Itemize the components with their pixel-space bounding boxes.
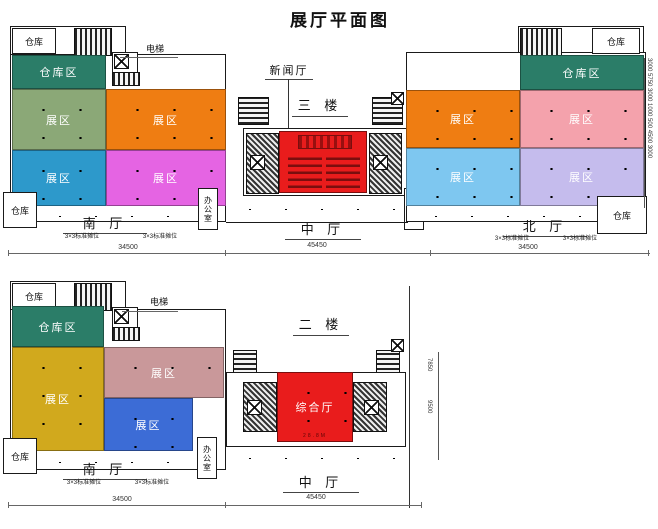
f2-multi-hall-dim: 28.8M xyxy=(278,433,352,439)
f3-warehouse-top-left: 仓库 xyxy=(12,28,56,54)
f2-zone-storage: 仓库区 xyxy=(12,306,104,347)
f3-news-hall-room xyxy=(279,131,367,193)
page-title: 展厅平面图 xyxy=(235,6,445,31)
zone-label: 展区 xyxy=(153,112,179,128)
f3-elevator-label: 电梯 xyxy=(146,42,164,55)
zone-label: 展区 xyxy=(151,365,177,381)
zone-label: 展区 xyxy=(569,111,595,127)
f3-dim-line xyxy=(8,253,650,254)
dim-tick xyxy=(430,250,431,256)
zone-label: 展区 xyxy=(136,417,162,433)
f3-dim-right-chain: 3000 5750 3000 1000 500 4500 3000 xyxy=(644,58,652,208)
f3-stair-tower-left-icon xyxy=(238,97,269,125)
f2-warehouse-bottom-left: 仓库 xyxy=(3,438,37,474)
dim-tick xyxy=(648,250,649,256)
f2-elevator-leader-line xyxy=(122,311,178,312)
zone-label: 综合厅 xyxy=(296,399,335,415)
f2-dim-central: 45450 xyxy=(296,494,336,501)
f2-floor-label: 二 楼 xyxy=(293,314,349,336)
f2-right-boundary-line xyxy=(409,286,410,508)
f3-booth-note-2: 3×3标准摊位 xyxy=(124,231,196,240)
office-label: 办公室 xyxy=(203,196,214,223)
f2-zone-dusty-pink: 展区 xyxy=(104,347,224,398)
warehouse-label: 仓库 xyxy=(613,209,631,222)
f3-dim-central: 45450 xyxy=(297,242,337,249)
zone-label: 展区 xyxy=(46,170,72,186)
zone-label: 展区 xyxy=(153,170,179,186)
f2-multi-hall-room: 综合厅 28.8M xyxy=(277,372,353,442)
dim-tick xyxy=(225,502,226,508)
f2-dim-south: 34500 xyxy=(102,496,142,503)
f3-zone-orange-left: 展区 xyxy=(106,89,226,150)
f3-stair-core-top-left-icon xyxy=(74,28,112,56)
zone-label: 仓库区 xyxy=(39,319,78,335)
f2-central-corridor-columns xyxy=(226,450,406,470)
f2-dim-right-upper: 7850 xyxy=(426,358,432,394)
dim-tick xyxy=(8,250,9,256)
f3-warehouse-bottom-right: 仓库 xyxy=(597,196,647,234)
f2-elevator-core-hatch-icon xyxy=(112,327,140,341)
dim-tick xyxy=(225,250,226,256)
warehouse-label: 仓库 xyxy=(11,450,29,463)
f2-elevator-label: 电梯 xyxy=(150,295,168,308)
zone-label: 展区 xyxy=(45,391,71,407)
f3-floor-label: 三 楼 xyxy=(292,95,348,117)
f3-stair-core-top-right-icon xyxy=(520,28,562,56)
f3-dim-south: 34500 xyxy=(108,244,148,251)
f3-warehouse-bottom-left: 仓库 xyxy=(3,192,37,228)
f3-core-right-x-icon xyxy=(373,155,388,170)
f3-zone-storage-right: 仓库区 xyxy=(520,55,644,90)
f3-booth-note-3: 3×3标准摊位 xyxy=(476,233,548,242)
f2-core-right-x-icon xyxy=(364,400,379,415)
f3-stage-icon xyxy=(298,135,352,149)
f3-warehouse-top-right: 仓库 xyxy=(592,28,640,54)
f3-zone-salmon-pink: 展区 xyxy=(520,90,644,148)
zone-label: 仓库区 xyxy=(563,65,602,81)
warehouse-label: 仓库 xyxy=(25,35,43,48)
zone-label: 展区 xyxy=(450,111,476,127)
f3-news-hall-leader-line xyxy=(288,79,289,128)
f3-zone-sage-green: 展区 xyxy=(12,89,106,150)
floor-plan-sheet: 展厅平面图 仓库 电梯 仓库区 展区 展区 展区 展区 仓库 南 厅 3×3标准… xyxy=(0,0,658,529)
f2-booth-note-2: 3×3标准摊位 xyxy=(116,477,188,486)
f3-seat-rows-left-icon xyxy=(288,154,322,188)
f2-booth-note-1: 3×3标准摊位 xyxy=(48,477,120,486)
dim-tick xyxy=(421,502,422,508)
dim-tick xyxy=(8,502,9,508)
f3-elevator-leader-line xyxy=(120,57,178,58)
f2-dim-right-lower: 9500 xyxy=(426,400,432,436)
zone-label: 展区 xyxy=(450,169,476,185)
f3-zone-storage-left: 仓库区 xyxy=(12,55,106,89)
f2-zone-gold: 展区 xyxy=(12,347,104,451)
office-label: 办公室 xyxy=(202,445,213,472)
f2-central-hall-label: 中 厅 xyxy=(283,472,359,493)
f2-office: 办公室 xyxy=(197,437,217,479)
warehouse-label: 仓库 xyxy=(11,204,29,217)
f2-core-left-x-icon xyxy=(247,400,262,415)
zone-label: 仓库区 xyxy=(40,64,79,80)
zone-label: 展区 xyxy=(46,112,72,128)
warehouse-label: 仓库 xyxy=(607,35,625,48)
f3-news-hall-label: 新闻厅 xyxy=(265,62,313,80)
f3-elevator-core-hatch-icon xyxy=(112,72,140,86)
f3-dim-north: 34500 xyxy=(508,244,548,251)
f2-vdim-line xyxy=(438,352,439,460)
f3-booth-note-4: 3×3标准摊位 xyxy=(544,233,616,242)
f2-zone-royal-blue: 展区 xyxy=(104,398,193,451)
f3-core-left-x-icon xyxy=(250,155,265,170)
f3-booth-note-1: 3×3标准摊位 xyxy=(46,231,118,240)
f3-zone-light-blue: 展区 xyxy=(406,148,520,206)
f2-dim-line xyxy=(8,505,422,506)
warehouse-label: 仓库 xyxy=(25,290,43,303)
f3-central-hall-label: 中 厅 xyxy=(285,219,361,240)
f3-seat-rows-right-icon xyxy=(326,154,360,188)
f2-small-elevator-x-icon xyxy=(391,339,404,352)
f3-zone-orange-right: 展区 xyxy=(406,90,520,148)
f3-office-left: 办公室 xyxy=(198,188,218,230)
f3-central-corridor-columns xyxy=(226,201,408,221)
f3-small-elevator-x-icon xyxy=(391,92,404,105)
zone-label: 展区 xyxy=(569,169,595,185)
